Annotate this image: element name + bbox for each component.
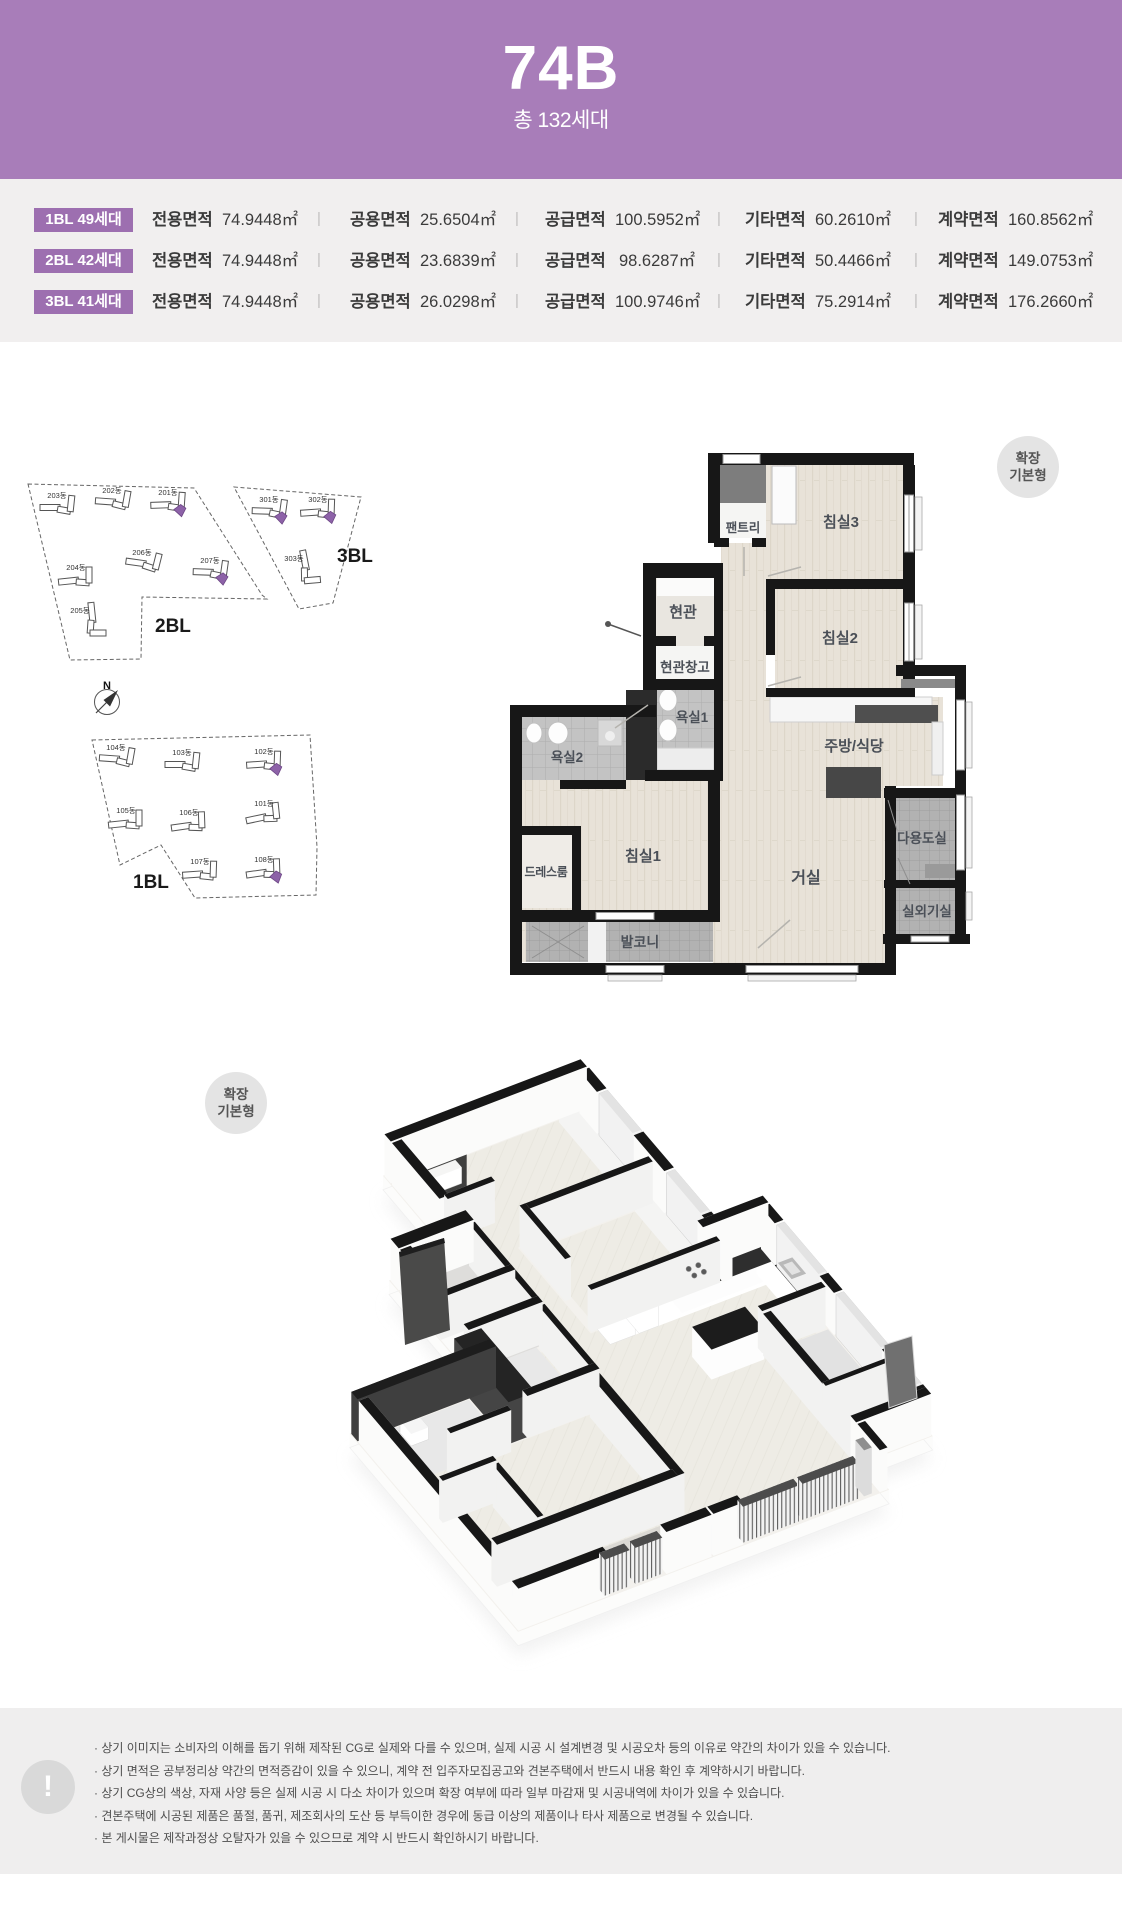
svg-text:욕실1: 욕실1 (676, 710, 709, 725)
svg-text:107동: 107동 (190, 857, 210, 866)
svg-text:201동: 201동 (158, 488, 178, 497)
svg-text:N: N (103, 680, 111, 692)
svg-text:108동: 108동 (254, 855, 274, 864)
svg-text:102동: 102동 (254, 747, 274, 756)
svg-text:207동: 207동 (200, 556, 220, 565)
svg-text:106동: 106동 (179, 808, 199, 817)
svg-text:다용도실: 다용도실 (897, 831, 947, 846)
svg-text:101동: 101동 (254, 799, 274, 808)
svg-text:침실3: 침실3 (823, 514, 859, 531)
svg-text:현관창고: 현관창고 (660, 659, 710, 675)
svg-text:침실2: 침실2 (822, 630, 858, 647)
svg-text:204동: 204동 (66, 563, 86, 572)
svg-text:302동: 302동 (308, 495, 328, 504)
svg-text:주방/식당: 주방/식당 (824, 737, 884, 755)
svg-text:거실: 거실 (791, 869, 820, 887)
svg-text:206동: 206동 (132, 548, 152, 557)
svg-text:2BL: 2BL (155, 616, 191, 637)
svg-text:103동: 103동 (172, 748, 192, 757)
svg-text:205동: 205동 (70, 606, 90, 615)
svg-text:욕실2: 욕실2 (551, 750, 583, 765)
svg-text:3BL: 3BL (337, 546, 373, 567)
svg-text:301동: 301동 (259, 495, 279, 504)
svg-text:침실1: 침실1 (625, 848, 661, 865)
svg-text:현관: 현관 (669, 604, 697, 621)
svg-text:203동: 203동 (47, 491, 67, 500)
svg-text:드레스룸: 드레스룸 (525, 864, 568, 879)
svg-text:303동: 303동 (284, 554, 304, 563)
svg-text:104동: 104동 (106, 743, 126, 752)
svg-text:실외기실: 실외기실 (902, 903, 952, 919)
svg-text:105동: 105동 (116, 806, 136, 815)
svg-text:팬트리: 팬트리 (726, 520, 761, 535)
svg-text:202동: 202동 (102, 486, 122, 495)
svg-text:1BL: 1BL (133, 872, 169, 893)
svg-text:발코니: 발코니 (621, 934, 660, 950)
